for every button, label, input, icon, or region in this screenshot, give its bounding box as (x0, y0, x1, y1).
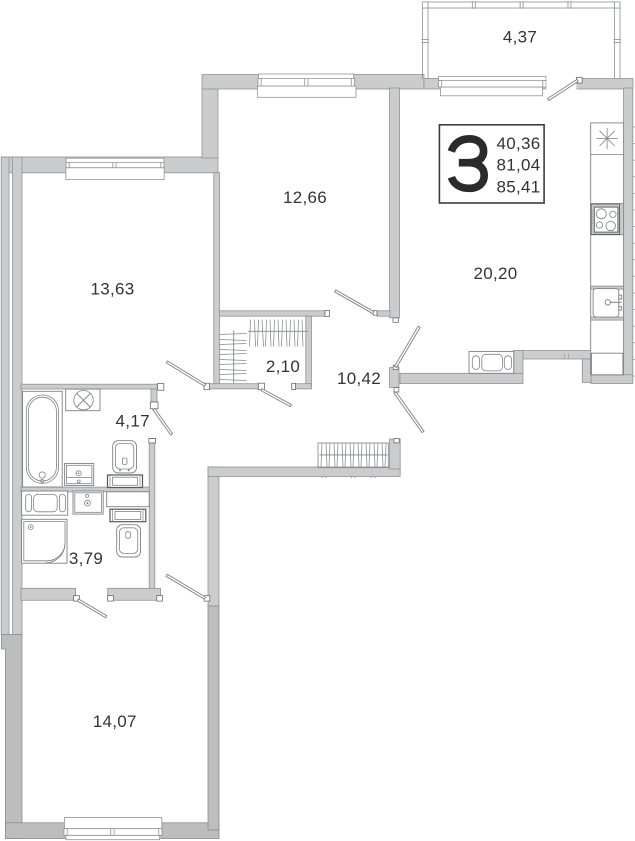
svg-text:3,79: 3,79 (69, 549, 103, 568)
svg-text:14,07: 14,07 (93, 712, 137, 731)
svg-text:4,37: 4,37 (503, 28, 537, 47)
svg-text:20,20: 20,20 (473, 264, 517, 283)
svg-text:85,41: 85,41 (497, 178, 541, 197)
svg-text:13,63: 13,63 (90, 280, 134, 299)
svg-text:12,66: 12,66 (283, 188, 327, 207)
svg-text:40,36: 40,36 (497, 134, 541, 153)
svg-text:81,04: 81,04 (497, 156, 541, 175)
svg-text:10,42: 10,42 (337, 369, 381, 388)
svg-text:2,10: 2,10 (266, 357, 300, 376)
svg-text:4,17: 4,17 (116, 412, 150, 431)
